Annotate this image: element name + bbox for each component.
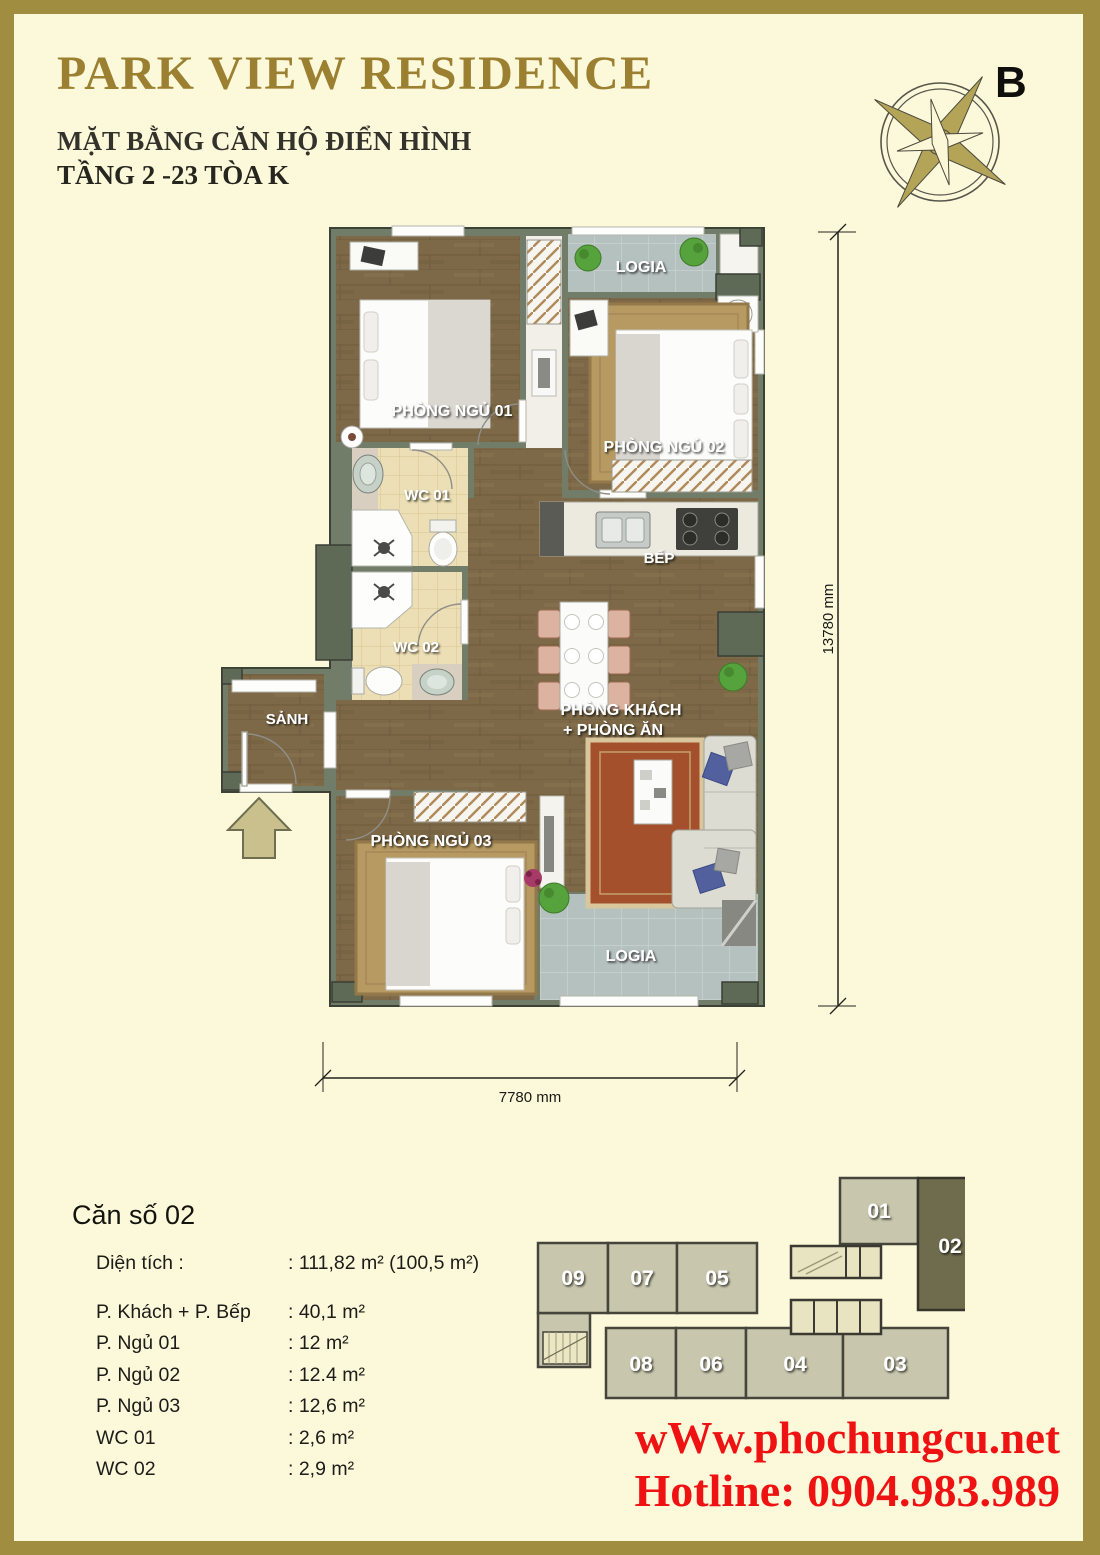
- row-value: : 111,82 m² (100,5 m²): [288, 1252, 479, 1274]
- living-furniture: [588, 736, 756, 908]
- building-key-plan: 09 07 05 01 02 08 06 04 03: [520, 1155, 965, 1410]
- keyplan-label-03: 03: [883, 1353, 906, 1376]
- keyplan-label-02: 02: [938, 1235, 961, 1258]
- table-row: WC 02: 2,9 m²: [96, 1454, 536, 1486]
- row-label: P. Ngủ 01: [96, 1328, 288, 1360]
- logia-bottom-label: LOGIA: [606, 948, 657, 965]
- corridor-floor: [474, 448, 562, 498]
- unit-info-table: Diện tích :: 111,82 m² (100,5 m²) P. Khá…: [96, 1248, 536, 1486]
- row-value: : 2,6 m²: [288, 1427, 354, 1449]
- row-label: WC 01: [96, 1423, 288, 1455]
- keyplan-label-04: 04: [783, 1353, 807, 1376]
- row-label: P. Ngủ 02: [96, 1360, 288, 1392]
- keyplan-label-09: 09: [561, 1267, 584, 1290]
- dining-set: [538, 602, 630, 710]
- width-dimension: 7780 mm: [499, 1089, 562, 1106]
- wc2-label: WC 02: [393, 639, 439, 656]
- entry-floor: [336, 700, 468, 790]
- keyplan-label-05: 05: [705, 1267, 729, 1290]
- row-label: WC 02: [96, 1454, 288, 1486]
- plan-subtitle: MẶT BẰNG CĂN HỘ ĐIỂN HÌNH: [57, 126, 471, 157]
- wc1-label: WC 01: [404, 487, 450, 504]
- contact-block: wWw.phochungcu.net Hotline: 0904.983.989: [635, 1412, 1060, 1518]
- table-row: P. Khách + P. Bếp: 40,1 m²: [96, 1297, 536, 1329]
- keyplan-label-06: 06: [699, 1353, 722, 1376]
- keyplan-label-07: 07: [630, 1267, 653, 1290]
- table-row: P. Ngủ 02: 12.4 m²: [96, 1360, 536, 1392]
- keyplan-label-08: 08: [629, 1353, 653, 1376]
- kitchen-counter: [540, 502, 758, 556]
- bedroom3-label: PHÒNG NGỦ 03: [371, 831, 492, 850]
- entrance-arrow: [228, 798, 290, 858]
- row-value: : 2,9 m²: [288, 1458, 354, 1480]
- kitchen-label: BẾP: [644, 550, 675, 567]
- row-label: Diện tích :: [96, 1248, 288, 1280]
- flyer-page: PARK VIEW RESIDENCE MẶT BẰNG CĂN HỘ ĐIỂN…: [0, 0, 1100, 1555]
- row-label: P. Khách + P. Bếp: [96, 1297, 288, 1329]
- table-row: WC 01: 2,6 m²: [96, 1423, 536, 1455]
- hotline-text: Hotline: 0904.983.989: [635, 1464, 1060, 1517]
- bedroom2-label: PHÒNG NGỦ 02: [604, 437, 725, 456]
- hall-label: SẢNH: [266, 711, 309, 728]
- keyplan-label-01: 01: [867, 1200, 891, 1223]
- row-value: : 12,6 m²: [288, 1395, 365, 1417]
- table-row: P. Ngủ 01: 12 m²: [96, 1328, 536, 1360]
- living-label-line1: PHÒNG KHÁCH: [561, 700, 682, 719]
- table-row: P. Ngủ 03: 12,6 m²: [96, 1391, 536, 1423]
- compass-north-label: B: [995, 58, 1027, 108]
- row-label: P. Ngủ 03: [96, 1391, 288, 1423]
- table-row: Diện tích :: 111,82 m² (100,5 m²): [96, 1248, 536, 1280]
- height-dimension: 13780 mm: [820, 584, 837, 655]
- row-value: : 12.4 m²: [288, 1364, 365, 1386]
- row-value: : 40,1 m²: [288, 1301, 365, 1323]
- bedroom2-furniture: [570, 300, 752, 492]
- website-link[interactable]: wWw.phochungcu.net: [635, 1412, 1060, 1464]
- floor-plan: PHÒNG NGỦ 01 LOGIA PHÒNG NGỦ 02 WC 01 BẾ…: [200, 215, 880, 1125]
- page-title: PARK VIEW RESIDENCE: [57, 46, 654, 101]
- floor-range-subtitle: TẦNG 2 -23 TÒA K: [57, 160, 289, 191]
- row-value: : 12 m²: [288, 1332, 349, 1354]
- living-label-line2: + PHÒNG ĂN: [563, 720, 663, 739]
- unit-number-title: Căn số 02: [72, 1200, 195, 1231]
- logia-top-label: LOGIA: [616, 259, 667, 276]
- bedroom1-label: PHÒNG NGỦ 01: [392, 401, 513, 420]
